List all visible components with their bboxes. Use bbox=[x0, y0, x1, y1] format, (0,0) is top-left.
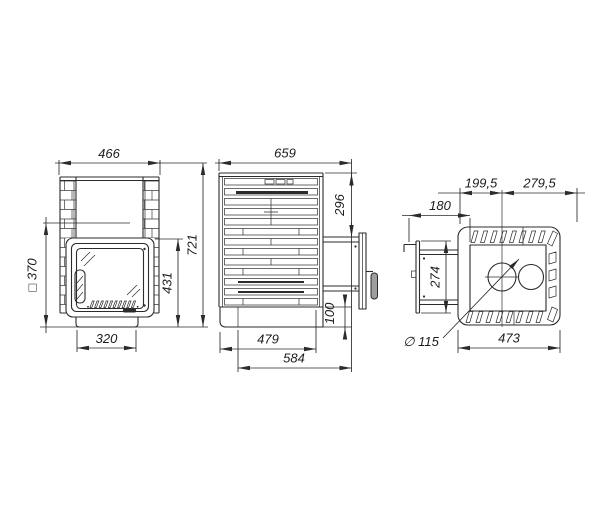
dim-door-top-offset: 296 bbox=[325, 173, 357, 237]
front-base bbox=[76, 317, 138, 327]
dim-plinth-height-label: 100 bbox=[322, 302, 337, 324]
ash-tab bbox=[123, 309, 136, 313]
dim-overall-height-label: 721 bbox=[185, 234, 200, 256]
dim-depth-with-door: 584 bbox=[238, 330, 352, 372]
second-circle bbox=[519, 265, 544, 290]
center-mark bbox=[264, 206, 278, 219]
dim-base-width: 320 bbox=[77, 330, 136, 352]
side-door-handle bbox=[366, 272, 378, 300]
dim-plinth-height: 100 bbox=[322, 296, 352, 338]
glass-reflection-lines bbox=[81, 252, 140, 297]
dim-base-depth: 479 bbox=[220, 310, 316, 353]
top-door-latch bbox=[412, 271, 417, 278]
door-glass bbox=[77, 249, 144, 309]
door-screw-top bbox=[143, 248, 145, 250]
side-door bbox=[323, 233, 378, 309]
dim-front-to-flue-label: 199,5 bbox=[465, 176, 498, 191]
brick-column-right bbox=[143, 181, 159, 239]
dim-flue-diameter-label: ∅ 115 bbox=[403, 334, 439, 349]
dim-door-top-offset-label: 296 bbox=[332, 193, 347, 216]
brick-column-left bbox=[60, 181, 76, 239]
door-outer-frame bbox=[66, 238, 154, 317]
drawing-canvas: 466 □ 370 721 431 320 bbox=[0, 0, 600, 526]
front-door bbox=[66, 238, 154, 317]
slat-dark-band bbox=[236, 191, 308, 194]
dim-depth-with-door-label: 584 bbox=[283, 351, 305, 366]
side-view bbox=[219, 173, 378, 327]
dim-base-width-label: 320 bbox=[96, 331, 118, 346]
dim-door-height-label: 431 bbox=[160, 272, 175, 294]
brick-column-left-lower bbox=[60, 238, 66, 313]
top-door-handle bbox=[404, 245, 416, 253]
dim-body-depth-label: 473 bbox=[498, 331, 520, 346]
dim-overall-depth-label: 659 bbox=[274, 146, 296, 161]
dim-body-depth: 473 bbox=[458, 330, 560, 353]
top-view-dimensions: 199,5 279,5 180 274 ∅ 115 473 bbox=[402, 176, 585, 354]
door-vents bbox=[87, 301, 138, 313]
side-slats bbox=[225, 179, 318, 306]
dim-door-protrusion-label: 180 bbox=[429, 198, 451, 213]
dim-base-depth-label: 479 bbox=[257, 332, 279, 347]
technical-drawing: 466 □ 370 721 431 320 bbox=[0, 0, 600, 526]
dim-flue-to-back-label: 279,5 bbox=[522, 176, 556, 191]
front-view bbox=[60, 177, 159, 327]
top-view-inner bbox=[470, 245, 546, 311]
dim-door-width: 274 bbox=[421, 241, 451, 313]
side-base bbox=[220, 307, 323, 327]
door-screw-bottom bbox=[143, 304, 145, 306]
dim-overall-width: 466 bbox=[55, 146, 207, 175]
dim-opening-label: □ 370 bbox=[25, 258, 40, 292]
brick-column-right-lower bbox=[154, 238, 159, 313]
top-view-body bbox=[458, 227, 560, 325]
dim-overall-width-label: 466 bbox=[98, 146, 120, 161]
dim-door-width-label: 274 bbox=[428, 266, 443, 289]
door-face bbox=[72, 244, 149, 312]
dim-flue-to-back: 279,5 bbox=[502, 176, 585, 223]
top-view bbox=[404, 190, 560, 327]
dim-opening: □ 370 bbox=[25, 217, 131, 333]
